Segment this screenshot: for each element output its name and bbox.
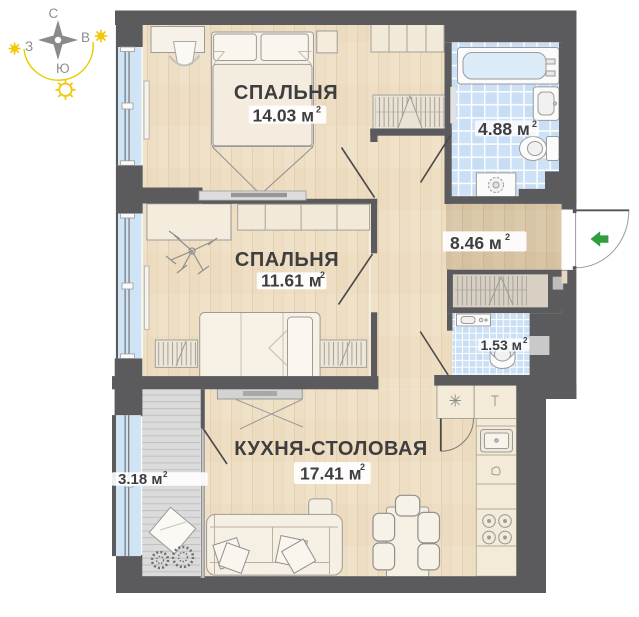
svg-text:С: С	[49, 6, 59, 21]
svg-text:Ю: Ю	[56, 61, 70, 76]
svg-text:2: 2	[523, 336, 528, 345]
svg-text:3.18 м: 3.18 м	[118, 471, 162, 488]
svg-text:2: 2	[360, 462, 365, 472]
svg-text:1.53 м: 1.53 м	[481, 337, 523, 353]
svg-text:4.88 м: 4.88 м	[478, 119, 530, 139]
svg-text:2: 2	[320, 270, 325, 280]
svg-text:2: 2	[532, 119, 537, 129]
svg-text:8.46 м: 8.46 м	[450, 233, 502, 253]
svg-text:11.61 м: 11.61 м	[261, 271, 322, 291]
svg-text:17.41 м: 17.41 м	[300, 464, 362, 484]
svg-text:КУХНЯ-СТОЛОВАЯ: КУХНЯ-СТОЛОВАЯ	[234, 438, 428, 460]
svg-text:2: 2	[505, 232, 510, 242]
svg-text:14.03 м: 14.03 м	[253, 106, 315, 126]
svg-text:СПАЛЬНЯ: СПАЛЬНЯ	[234, 82, 338, 104]
svg-text:2: 2	[163, 470, 168, 479]
svg-text:З: З	[25, 39, 33, 54]
svg-text:2: 2	[316, 105, 321, 115]
svg-text:СПАЛЬНЯ: СПАЛЬНЯ	[235, 249, 339, 271]
svg-text:В: В	[81, 30, 90, 45]
